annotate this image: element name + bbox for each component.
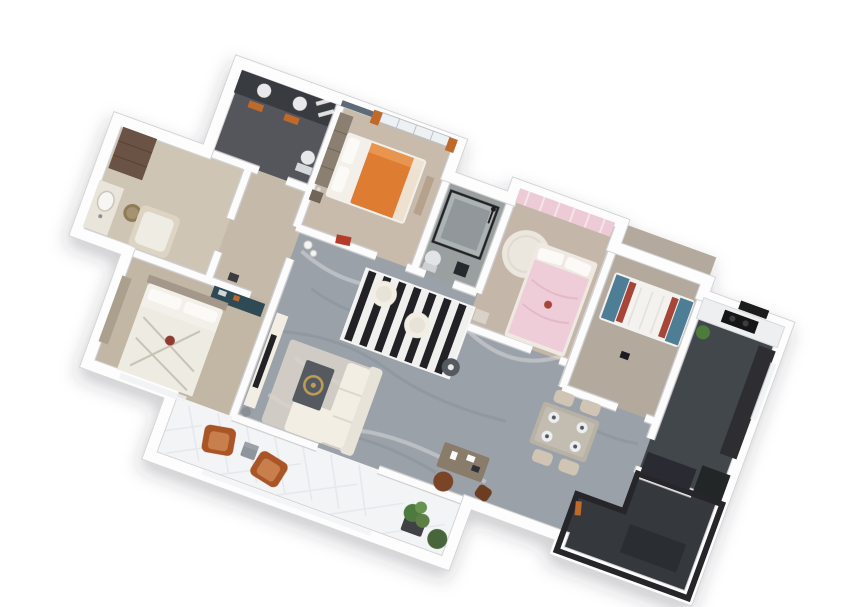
floor-plan-svg xyxy=(0,0,844,607)
lounge-chair-1-seat xyxy=(207,431,230,452)
floor-plan-figure xyxy=(0,0,844,607)
lounge-chair-1 xyxy=(201,424,237,457)
orange-tool xyxy=(575,501,582,515)
apartment-plan xyxy=(13,28,811,607)
